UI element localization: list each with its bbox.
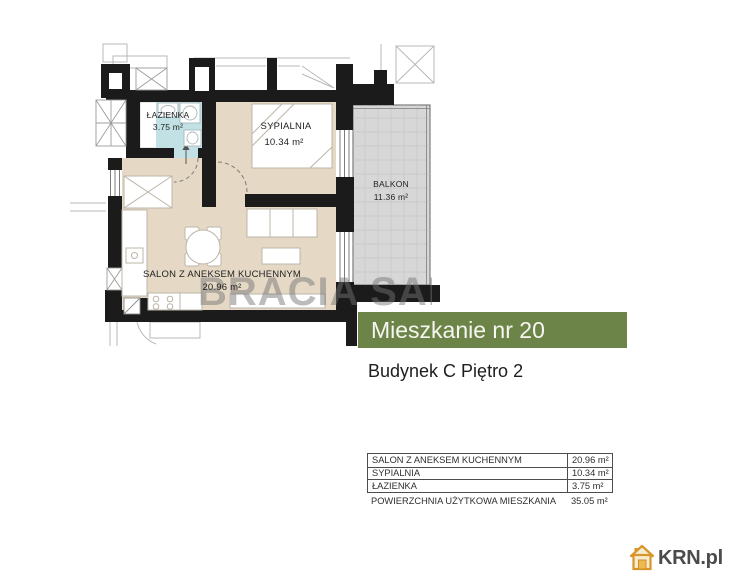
table-summary-row: POWIERZCHNIA UŻYTKOWA MIESZKANIA 35.05 m… <box>367 495 613 508</box>
row-label: SALON Z ANEKSEM KUCHENNYM <box>368 455 567 465</box>
apartment-title: Mieszkanie nr 20 <box>371 317 545 343</box>
row-value: 20.96 m² <box>567 454 612 467</box>
bedroom-label: SYPIALNIA <box>261 122 312 132</box>
wardrobe <box>124 176 172 208</box>
house-icon <box>629 544 655 572</box>
balcony-area: 11.36 m² <box>374 193 409 202</box>
table-row: SALON Z ANEKSEM KUCHENNYM 20.96 m² <box>368 454 612 467</box>
sofa <box>247 209 317 237</box>
living-room-label: SALON Z ANEKSEM KUCHENNYM <box>143 270 301 280</box>
bathroom-area: 3.75 m² <box>153 123 183 132</box>
dining-set <box>185 227 221 266</box>
row-label: SYPIALNIA <box>368 468 567 478</box>
bedroom-area: 10.34 m² <box>264 138 303 148</box>
area-table: SALON Z ANEKSEM KUCHENNYM 20.96 m² SYPIA… <box>367 453 613 508</box>
stove <box>148 293 202 310</box>
apartment-listing-image: BRACIA SAD ŁAZIENKA 3.75 m² SYPIALNIA 10… <box>0 0 740 586</box>
logo-text: KRN.pl <box>658 547 723 570</box>
bedroom-furniture <box>252 104 332 168</box>
row-value: 10.34 m² <box>567 468 612 480</box>
table-row: SYPIALNIA 10.34 m² <box>368 467 612 480</box>
krn-logo: KRN.pl <box>629 544 723 572</box>
building-floor-label: Budynek C Piętro 2 <box>368 361 523 382</box>
summary-value: 35.05 m² <box>566 495 613 508</box>
entrance-door <box>124 298 140 314</box>
area-table-body: SALON Z ANEKSEM KUCHENNYM 20.96 m² SYPIA… <box>367 453 613 493</box>
apartment-banner: Mieszkanie nr 20 <box>358 312 627 348</box>
living-room-area: 20.96 m² <box>202 283 241 293</box>
balcony-label: BALKON <box>373 180 409 189</box>
row-value: 3.75 m² <box>567 480 612 492</box>
bathroom-label: ŁAZIENKA <box>147 111 190 120</box>
row-label: ŁAZIENKA <box>368 481 567 491</box>
coffee-table <box>262 248 300 264</box>
summary-label: POWIERZCHNIA UŻYTKOWA MIESZKANIA <box>367 496 566 506</box>
table-row: ŁAZIENKA 3.75 m² <box>368 479 612 492</box>
